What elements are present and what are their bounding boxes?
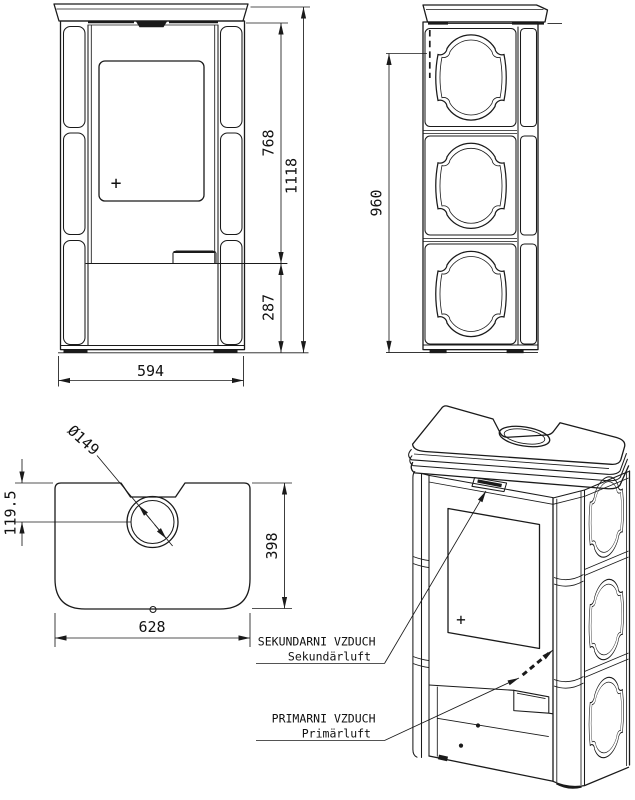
dim-front-width: 594 bbox=[137, 362, 164, 380]
iso-medallion-3 bbox=[589, 671, 624, 764]
secondary-air-leader bbox=[385, 491, 487, 664]
front-tiles bbox=[64, 27, 243, 345]
front-base bbox=[61, 346, 245, 354]
stove-technical-drawing-page: + 768 1118 287 594 bbox=[0, 0, 635, 800]
front-dimensions: 768 1118 287 594 bbox=[58, 7, 310, 387]
dim-top-width: 628 bbox=[138, 618, 165, 636]
dim-body-height: 960 bbox=[368, 189, 386, 216]
secondary-air-slot bbox=[136, 22, 167, 28]
iso-body bbox=[413, 470, 630, 785]
iso-view: + SEKUNDARNI VZDUCH bbox=[256, 406, 630, 788]
iso-right-column-joints bbox=[554, 575, 584, 689]
iso-door: + bbox=[448, 509, 540, 649]
secondary-air-label-cs: SEKUNDARNI VZDUCH bbox=[258, 635, 376, 649]
iso-annotations: SEKUNDARNI VZDUCH Sekundärluft PRIMARNI … bbox=[256, 491, 519, 741]
iso-floor-bolt-1 bbox=[476, 723, 480, 727]
side-cap bbox=[423, 5, 562, 24]
top-view: Ø149 119.5 398 628 bbox=[2, 422, 293, 647]
front-door: + bbox=[99, 61, 204, 201]
side-view: 960 bbox=[368, 5, 563, 353]
top-plate bbox=[15, 483, 250, 613]
side-medallion-3 bbox=[436, 251, 506, 336]
iso-top-plate bbox=[409, 406, 629, 489]
front-air-vent bbox=[88, 22, 218, 28]
side-medallion-1 bbox=[436, 35, 506, 120]
dim-total-height: 1118 bbox=[283, 158, 301, 194]
iso-floor-bolt-2 bbox=[459, 744, 463, 748]
iso-primary-air-marks bbox=[523, 650, 553, 675]
top-dimensions: Ø149 119.5 398 628 bbox=[2, 422, 293, 647]
iso-medallion-2 bbox=[589, 573, 624, 666]
side-body bbox=[423, 22, 544, 350]
dim-depth: 398 bbox=[263, 532, 281, 559]
iso-lower-recess bbox=[429, 685, 553, 761]
dim-base-height: 287 bbox=[260, 294, 278, 321]
side-tiles bbox=[425, 29, 537, 345]
front-view: + 768 1118 287 594 bbox=[54, 4, 310, 387]
side-medallion-2 bbox=[436, 143, 506, 228]
iso-medallion-1 bbox=[589, 470, 624, 563]
side-dimensions: 960 bbox=[368, 54, 539, 353]
primary-air-label-de: Primärluft bbox=[302, 727, 371, 741]
front-body bbox=[61, 21, 245, 350]
side-base bbox=[423, 345, 538, 353]
iso-base bbox=[429, 756, 629, 788]
primary-air-leader bbox=[385, 678, 520, 741]
stove-technical-drawing: + 768 1118 287 594 bbox=[0, 0, 635, 800]
iso-door-handle-cross: + bbox=[456, 610, 466, 629]
dim-firebox-height: 768 bbox=[260, 129, 278, 156]
secondary-air-label-de: Sekundärluft bbox=[288, 650, 371, 664]
front-cap bbox=[54, 4, 248, 21]
dim-flue-center-offset: 119.5 bbox=[2, 490, 20, 535]
front-door-handle-cross: + bbox=[111, 173, 122, 194]
front-handle-step bbox=[86, 251, 287, 264]
primary-air-label-cs: PRIMARNI VZDUCH bbox=[272, 712, 376, 726]
dim-flue-diameter: Ø149 bbox=[64, 422, 103, 460]
